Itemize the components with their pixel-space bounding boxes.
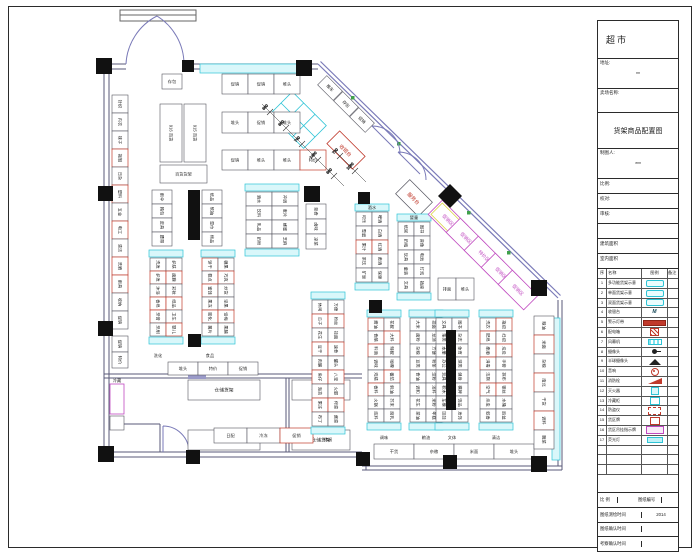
- legend-note: [668, 357, 678, 366]
- shelf-label: 清洁: [117, 244, 124, 252]
- shelf-label: 鸡精: [373, 372, 380, 380]
- legend-name: 多功能货架示意: [607, 279, 642, 288]
- shelf-label: 米面: [470, 448, 478, 455]
- shelf-label: 洁厕: [485, 372, 492, 380]
- shelf-label: 球类: [457, 359, 464, 368]
- shelf-label: 堆头: [461, 286, 469, 293]
- area-label: 清洁: [492, 434, 500, 441]
- shelf-label: 芥末: [389, 398, 396, 407]
- shelf-label: 纸品: [209, 193, 216, 201]
- legend-name: 货区牌: [607, 416, 642, 425]
- shelf-label: 炒货: [223, 286, 230, 294]
- shelf-label: 针织: [117, 100, 124, 108]
- shelf-label: 彩妆: [171, 286, 178, 295]
- shelf-label: 熟食: [313, 207, 320, 216]
- gondola-endcap: [311, 427, 345, 434]
- area-label: 冷藏: [113, 377, 122, 384]
- check-field: 校对:: [598, 194, 678, 209]
- shelf-label: 啤酒: [377, 215, 384, 223]
- room-door: [163, 426, 189, 452]
- hydrant-symbol: [648, 378, 662, 384]
- shelf-label: 促销: [117, 316, 124, 324]
- shelf-label: 粮油: [541, 321, 548, 329]
- shelf-label: 瓜子: [318, 317, 324, 325]
- legend-row: 8摄像头: [598, 348, 678, 358]
- shelf-label: 蜜饯: [207, 286, 214, 294]
- shelf-label: 腐乳: [389, 411, 396, 420]
- legend-symbol-cell: [642, 387, 668, 396]
- shelf-label: 塑料: [117, 190, 124, 199]
- gondola-endcap: [397, 293, 431, 300]
- legend-symbol-cell: [642, 377, 668, 386]
- shelf-label: 仓储货架: [214, 387, 233, 394]
- legend-name: 半球摄像头: [607, 357, 642, 366]
- shelf-label: 五金: [118, 208, 124, 217]
- shelf-label: 冷冻: [259, 432, 267, 439]
- shelf-label: 916 百货: [168, 125, 175, 142]
- shelf-label: 拖把: [501, 320, 508, 329]
- shelf-label: 软抽: [209, 207, 216, 215]
- power-box-symbol: [650, 328, 659, 336]
- area-label: 休闲: [324, 436, 332, 443]
- legend-row: 4收银台M: [598, 308, 678, 318]
- legend-name: 双面货架示意: [607, 299, 642, 308]
- legend-symbol-cell: [642, 328, 668, 337]
- legend-symbol-cell: [642, 318, 668, 327]
- shelf-label: 收纳: [117, 298, 124, 306]
- shelf-label: 南北: [541, 378, 548, 387]
- client-field: 卖场名称:: [598, 89, 678, 113]
- shelf-label: 特价: [209, 365, 218, 371]
- shelf-label: 干货: [541, 397, 548, 405]
- floor-plan: 收银台 服务台 存包促销促销堆头堆头促销堆头促销堆头堆头特价百货货架排面堆头堆头…: [0, 0, 700, 555]
- interior-area-field: 室内面积: [598, 254, 678, 269]
- shelf-label: 酱油: [373, 320, 380, 328]
- legend-name: 灭火器: [607, 387, 642, 396]
- gondola-endcap: [479, 310, 513, 317]
- shelf-label: 促销: [292, 432, 300, 439]
- legend-row: 13冷藏柜: [598, 397, 678, 407]
- legend-name: 防盗仪: [607, 406, 642, 415]
- shelf-double-symbol: [646, 299, 664, 306]
- area-label: 酒水: [368, 204, 377, 211]
- shelf-label: 面粉: [415, 333, 422, 342]
- shelf-label: 雨伞: [159, 193, 166, 202]
- shelf-label: 肉脯: [317, 359, 324, 367]
- shelf-label: 糕点: [207, 273, 214, 281]
- shelf-label: 手套: [501, 359, 508, 368]
- legend-header-symbol: 图例: [642, 269, 668, 278]
- shelf-label: 纸尿: [403, 225, 410, 233]
- shelf-label: 饮料: [256, 209, 263, 218]
- legend-symbol-cell: [642, 446, 668, 455]
- area-label: 食品: [206, 352, 214, 359]
- shelf-label: 童装: [403, 267, 410, 276]
- legend-no: 9: [598, 357, 607, 366]
- hanging-sign-symbol: [646, 426, 664, 434]
- legend-no: 11: [598, 377, 607, 386]
- shelf-label: 发饰: [457, 411, 464, 419]
- diagonal-entry-doors: [372, 126, 426, 180]
- legend-no: 6: [598, 328, 607, 337]
- shelf-label: 料酒: [373, 346, 380, 354]
- shelf-label: 底料: [373, 411, 380, 420]
- shelf-label: 促销: [257, 81, 265, 88]
- legend-note: [668, 318, 678, 327]
- shelf-label: 大料: [389, 333, 396, 342]
- shelf-label: 黄酒: [377, 257, 384, 265]
- legend-no: 7: [598, 338, 607, 347]
- legend-note: [668, 348, 678, 357]
- security-gate-symbol: [648, 407, 661, 415]
- drawing-title: 货架商品配置图: [598, 113, 678, 149]
- legend-note: [668, 465, 678, 474]
- legend-no: 14: [598, 406, 607, 415]
- legend-note: [668, 426, 678, 435]
- shelf-label: 娃娃: [441, 411, 448, 419]
- legend-row: 16货区吊挂指示牌: [598, 426, 678, 436]
- legend-row: 2单面货架示意: [598, 289, 678, 299]
- shelf-label: 垃圾: [501, 346, 508, 355]
- area-label: 调味: [380, 434, 389, 441]
- shelf-label: 米面: [541, 340, 548, 348]
- warn-light-symbol: [643, 320, 666, 326]
- legend-row: 9半球摄像头: [598, 357, 678, 367]
- legend-symbol-cell: [642, 357, 668, 366]
- shelf-label: 水桶: [501, 398, 508, 406]
- legend-note: [668, 436, 678, 445]
- air-curtain-symbol: [648, 339, 662, 345]
- freezer-symbol: [650, 397, 660, 405]
- shelf-label: 鱼仔: [317, 373, 324, 382]
- shelf-label: 酒水: [256, 195, 263, 204]
- legend-no: 5: [598, 318, 607, 327]
- shelf-label: 灯泡: [419, 267, 426, 276]
- gondola-endcap: [245, 184, 299, 191]
- shelf-single-symbol: [646, 290, 664, 297]
- shelf-label: 牙膏: [155, 312, 162, 320]
- shelf-label: 卤味: [313, 222, 320, 231]
- footer-scale-row: 比 例 图纸编号: [598, 493, 678, 508]
- legend-symbol-cell: [642, 406, 668, 415]
- area-label: 洗化: [154, 352, 163, 359]
- legend-note: [668, 397, 678, 406]
- legend-name: 收银台: [607, 308, 642, 317]
- shelf-label: 百货货架: [175, 171, 192, 178]
- legend-row: 15货区牌: [598, 416, 678, 426]
- shelving: 存包促销促销堆头堆头促销堆头促销堆头堆头特价百货货架排面堆头堆头特价促销仓储货架…: [112, 74, 554, 459]
- shelf-label: 抹布: [501, 372, 508, 380]
- legend-note: [668, 387, 678, 396]
- legend-note: [668, 406, 678, 415]
- legend-note: [668, 455, 678, 464]
- legend-header-no: 序号: [598, 269, 607, 278]
- legend-row: 10音响: [598, 367, 678, 377]
- shelf-label: 香料: [373, 385, 380, 394]
- shelf-label: 杂志: [458, 333, 464, 341]
- legend-name: 货区吊挂指示牌: [607, 426, 642, 435]
- legend-symbol-cell: [642, 416, 668, 425]
- legend-no: 1: [598, 279, 607, 288]
- shelf-label: 促销: [231, 157, 239, 164]
- gondola-endcap: [245, 249, 299, 256]
- refrigerator: [110, 384, 124, 430]
- shelf-label: 牙刷: [155, 325, 162, 333]
- shelf-label: 速食: [333, 345, 340, 354]
- shelf-label: 堆头: [231, 119, 239, 126]
- shelf-label: 坚果: [223, 299, 230, 308]
- shelf-label: 乳品: [256, 223, 263, 231]
- building-area-field: 建筑面积: [598, 239, 678, 254]
- service-desk: 服务台: [396, 180, 433, 217]
- shelf-label: 豆类: [415, 359, 422, 368]
- shelf-label: 雪碧: [361, 229, 368, 237]
- legend-note: [668, 279, 678, 288]
- legend-symbol-cell: [642, 426, 668, 435]
- legend-symbol-cell: [642, 279, 668, 288]
- drawing-sheet: 收银台 服务台 存包促销促销堆头堆头促销堆头促销堆头堆头特价百货货架排面堆头堆头…: [0, 0, 700, 555]
- shelf-label: 果脯: [223, 325, 230, 333]
- shelf-label: 糖果: [223, 260, 230, 269]
- legend-row: 17荧光灯: [598, 436, 678, 446]
- legend-name: 单面货架示意: [607, 289, 642, 298]
- shelf-label: 纸品: [171, 299, 178, 307]
- shelf-label: 文具: [403, 281, 410, 290]
- gondola-endcap: [311, 292, 345, 299]
- legend-row: 12灭火器: [598, 387, 678, 397]
- legend-symbol-cell: [642, 465, 668, 474]
- address-field: 地址: **: [598, 59, 678, 89]
- shelf-label: 面膜: [171, 273, 178, 281]
- shelf-label: 堆头: [283, 81, 291, 88]
- shelf-label: 促销: [239, 365, 247, 372]
- shelf-label: 调味: [373, 359, 380, 368]
- title-block: 超市 地址: ** 卖场名称: 货架商品配置图 制图人: *** 比例: 校对:…: [597, 20, 679, 552]
- shelf-label: 奶粉: [256, 237, 263, 246]
- legend-symbol-cell: [642, 289, 668, 298]
- area-label: 文体: [448, 434, 457, 441]
- legend-symbol-cell: [642, 397, 668, 406]
- shelf-label: 挂面: [333, 331, 340, 339]
- legend-row: 14防盗仪: [598, 406, 678, 416]
- shelf-label: 海苔: [317, 387, 324, 395]
- shelf-label: 奶瓶: [403, 239, 410, 247]
- shelf-label: 冲调: [282, 195, 289, 203]
- shelf-label: 辣椒: [389, 346, 396, 355]
- shelf-label: 方便: [333, 303, 340, 312]
- shelf-label: 番茄: [389, 372, 396, 380]
- shelf-label: 榨菜: [333, 401, 340, 410]
- legend-blank: [598, 475, 678, 493]
- legend-no: 10: [598, 367, 607, 376]
- legend-name: 冷藏柜: [607, 397, 642, 406]
- shelf-label: 护肤: [171, 260, 178, 269]
- shelf-label: 洗发: [155, 260, 162, 269]
- shelf-label: 可乐: [362, 215, 368, 223]
- legend-header-note: 备注: [668, 269, 678, 278]
- shelf-label: 促销: [231, 81, 239, 88]
- legend-no: 2: [598, 289, 607, 298]
- legend-symbol-cell: [642, 367, 668, 376]
- shelf-label: 插座: [419, 281, 426, 289]
- shelf-label: 果冻: [207, 299, 214, 307]
- drafter-field: 制图人: ***: [598, 149, 678, 179]
- shelf-label: 洗晒: [117, 262, 124, 270]
- legend-row: 5警示灯带: [598, 318, 678, 328]
- shelf-label: 存包: [168, 78, 177, 84]
- shelf-label: 箱包: [159, 207, 166, 216]
- review-field: 审核:: [598, 209, 678, 224]
- shelf-label: 堆头: [510, 448, 518, 455]
- shelf-label: 空气: [486, 385, 492, 394]
- legend-name: [607, 465, 642, 474]
- shelf-label: 保健: [377, 271, 384, 280]
- scale-field: 比例:: [598, 179, 678, 194]
- gondola-endcap: [435, 310, 469, 317]
- legend-note: [668, 289, 678, 298]
- shelf-label: 棋牌: [457, 385, 464, 393]
- shelf-label: 堆头: [179, 365, 187, 372]
- footer-confirm-row: 图纸确认时间: [598, 523, 678, 537]
- gondola-endcap: [355, 283, 389, 290]
- shelf-label: 文具: [441, 320, 448, 329]
- shelf-label: 饰品: [457, 398, 464, 406]
- shelf-label: 矿泉: [361, 271, 368, 280]
- legend-row: 序号名称图例备注: [598, 269, 678, 279]
- legend-no: 15: [598, 416, 607, 425]
- shelf-label: 卫生: [172, 312, 178, 320]
- shelf-label: 促销: [117, 340, 124, 348]
- shelf-label: 花生: [415, 398, 422, 406]
- shelf-label: 杂粮: [541, 359, 548, 368]
- shelf-label: 沐浴: [155, 286, 162, 295]
- legend-table: 序号名称图例备注1多功能货架示意2单面货架示意3双面货架示意4收银台M5警示灯带…: [598, 269, 678, 475]
- shelf-label: 香皂: [155, 299, 162, 307]
- legend-note: [668, 416, 678, 425]
- shelf-label: 酱菜: [333, 415, 340, 424]
- shelf-label: 湿巾: [209, 221, 216, 229]
- gondola-endcap: [367, 423, 401, 430]
- legend-note: [668, 308, 678, 317]
- shelf-label: 膨化: [207, 312, 214, 321]
- legend-row: 7风幕机: [598, 338, 678, 348]
- legend-symbol-cell: M: [642, 308, 668, 317]
- shelf-label: 食油: [415, 372, 422, 380]
- shelf-label: 罐头: [333, 359, 340, 367]
- shelf-label: 电池: [420, 253, 426, 262]
- shelf-label: 袜子: [117, 136, 124, 144]
- shelf-label: 体育: [457, 346, 464, 354]
- legend-note: [668, 446, 678, 455]
- shelf-label: 芝麻: [282, 237, 289, 246]
- shelf-label: 电工: [118, 226, 124, 234]
- dome-camera-symbol: [649, 359, 661, 365]
- shelf-label: 杂粮: [415, 346, 422, 355]
- shelf-label: 大米: [415, 320, 422, 329]
- fluorescent-symbol: [647, 437, 663, 443]
- gondola-endcap: [479, 423, 513, 430]
- shelf-label: 蚝油: [389, 385, 396, 393]
- legend-symbol-cell: [642, 455, 668, 464]
- legend-row: [598, 455, 678, 465]
- shelf-label: 咖喱: [389, 359, 396, 367]
- shelf-label: 特价: [118, 356, 124, 365]
- legend-no: 13: [598, 397, 607, 406]
- shelf-label: 茶饮: [361, 257, 368, 266]
- extinguisher-symbol: [651, 387, 659, 395]
- shelf-label: 蚊香: [485, 411, 492, 420]
- shelf-label: 果汁: [361, 243, 368, 252]
- legend-no: 16: [598, 426, 607, 435]
- gondola-endcap: [201, 250, 235, 257]
- shelf-label: 堆头: [283, 157, 291, 164]
- legend-symbol-cell: [642, 338, 668, 347]
- shelf-label: 菜油: [415, 411, 422, 419]
- legend-row: 1多功能货架示意: [598, 279, 678, 289]
- shelf-label: 拖鞋: [117, 154, 124, 163]
- shelf-label: 八宝: [334, 373, 340, 381]
- area-label: 婴童: [410, 214, 418, 221]
- shelf-label: 调和: [415, 385, 422, 393]
- shelf-label: 果冻: [317, 401, 324, 409]
- shelf-label: 饼干: [207, 260, 214, 268]
- legend-name: 音响: [607, 367, 642, 376]
- legend-symbol-cell: [642, 299, 668, 308]
- legend-note: [668, 367, 678, 376]
- legend-name: 荧光灯: [607, 436, 642, 445]
- shelf-label: 调料: [541, 416, 548, 425]
- legend-header-name: 名称: [607, 269, 642, 278]
- footer-visit-row: 考察确认时间: [598, 537, 678, 551]
- entrance-doors: [120, 10, 196, 64]
- footer-survey-row: 图纸测绘时间 2014: [598, 508, 678, 523]
- shelf-label: 图书: [419, 225, 426, 233]
- legend-no: [598, 465, 607, 474]
- shelf-label: 话梅: [223, 312, 230, 320]
- shelf-label: 粉丝: [333, 317, 340, 325]
- legend-note: [668, 338, 678, 347]
- legend-no: 4: [598, 308, 607, 317]
- legend-symbol-cell: [642, 348, 668, 357]
- shelf-label: 洗衣: [485, 320, 492, 329]
- shelf-label: 薯片: [207, 325, 214, 333]
- blank-field: [598, 224, 678, 239]
- shelf-label: 休闲: [317, 303, 324, 311]
- shelf-multi-symbol: [646, 280, 664, 287]
- shelf-label: 花生: [317, 331, 324, 339]
- legend-name: 摄像头: [607, 348, 642, 357]
- legend-no: 12: [598, 387, 607, 396]
- zone-sign-symbol: [650, 417, 660, 425]
- shelf-label: 婴儿: [171, 325, 178, 334]
- legend-note: [668, 328, 678, 337]
- shelf-label: 干货: [390, 448, 398, 455]
- shelf-label: 白酒: [377, 229, 384, 237]
- speaker-symbol: [651, 368, 659, 376]
- gondola-endcap: [435, 423, 469, 430]
- cashier-symbol: M: [652, 308, 656, 317]
- gondola-endcap: [149, 337, 183, 344]
- shelf-label: 排面: [443, 286, 451, 293]
- legend-row: 3双面货架示意: [598, 299, 678, 309]
- legend-name: 消防栓: [607, 377, 642, 386]
- camera-symbol: [652, 349, 657, 354]
- legend-no: 8: [598, 348, 607, 357]
- shelf-label: 堆头: [257, 157, 265, 164]
- shelf-label: 凉菜: [313, 237, 320, 246]
- legend-symbol-cell: [642, 436, 668, 445]
- legend-name: 风幕机: [607, 338, 642, 347]
